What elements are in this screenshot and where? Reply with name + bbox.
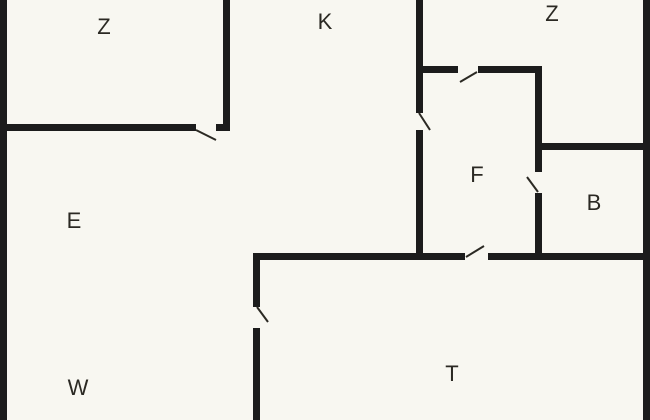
door-leaf-main [466,246,484,257]
room-k-label: K [318,11,333,33]
door-swing-layer [0,0,650,420]
floorplan-canvas: ZKZEFBWT [0,0,650,420]
room-f-label: F [470,164,483,186]
door-leaf-f-top [460,72,477,82]
room-z-left-label: Z [97,16,110,38]
room-w-label: W [68,377,89,399]
room-b-label: B [587,192,602,214]
room-z-right-label: Z [545,3,558,25]
door-leaf-w-t [257,307,268,322]
door-leaf-z-left [196,130,216,140]
door-leaf-f-b [527,177,538,192]
door-leaf-k-f [419,113,430,130]
room-e-label: E [67,210,82,232]
room-t-label: T [445,363,458,385]
